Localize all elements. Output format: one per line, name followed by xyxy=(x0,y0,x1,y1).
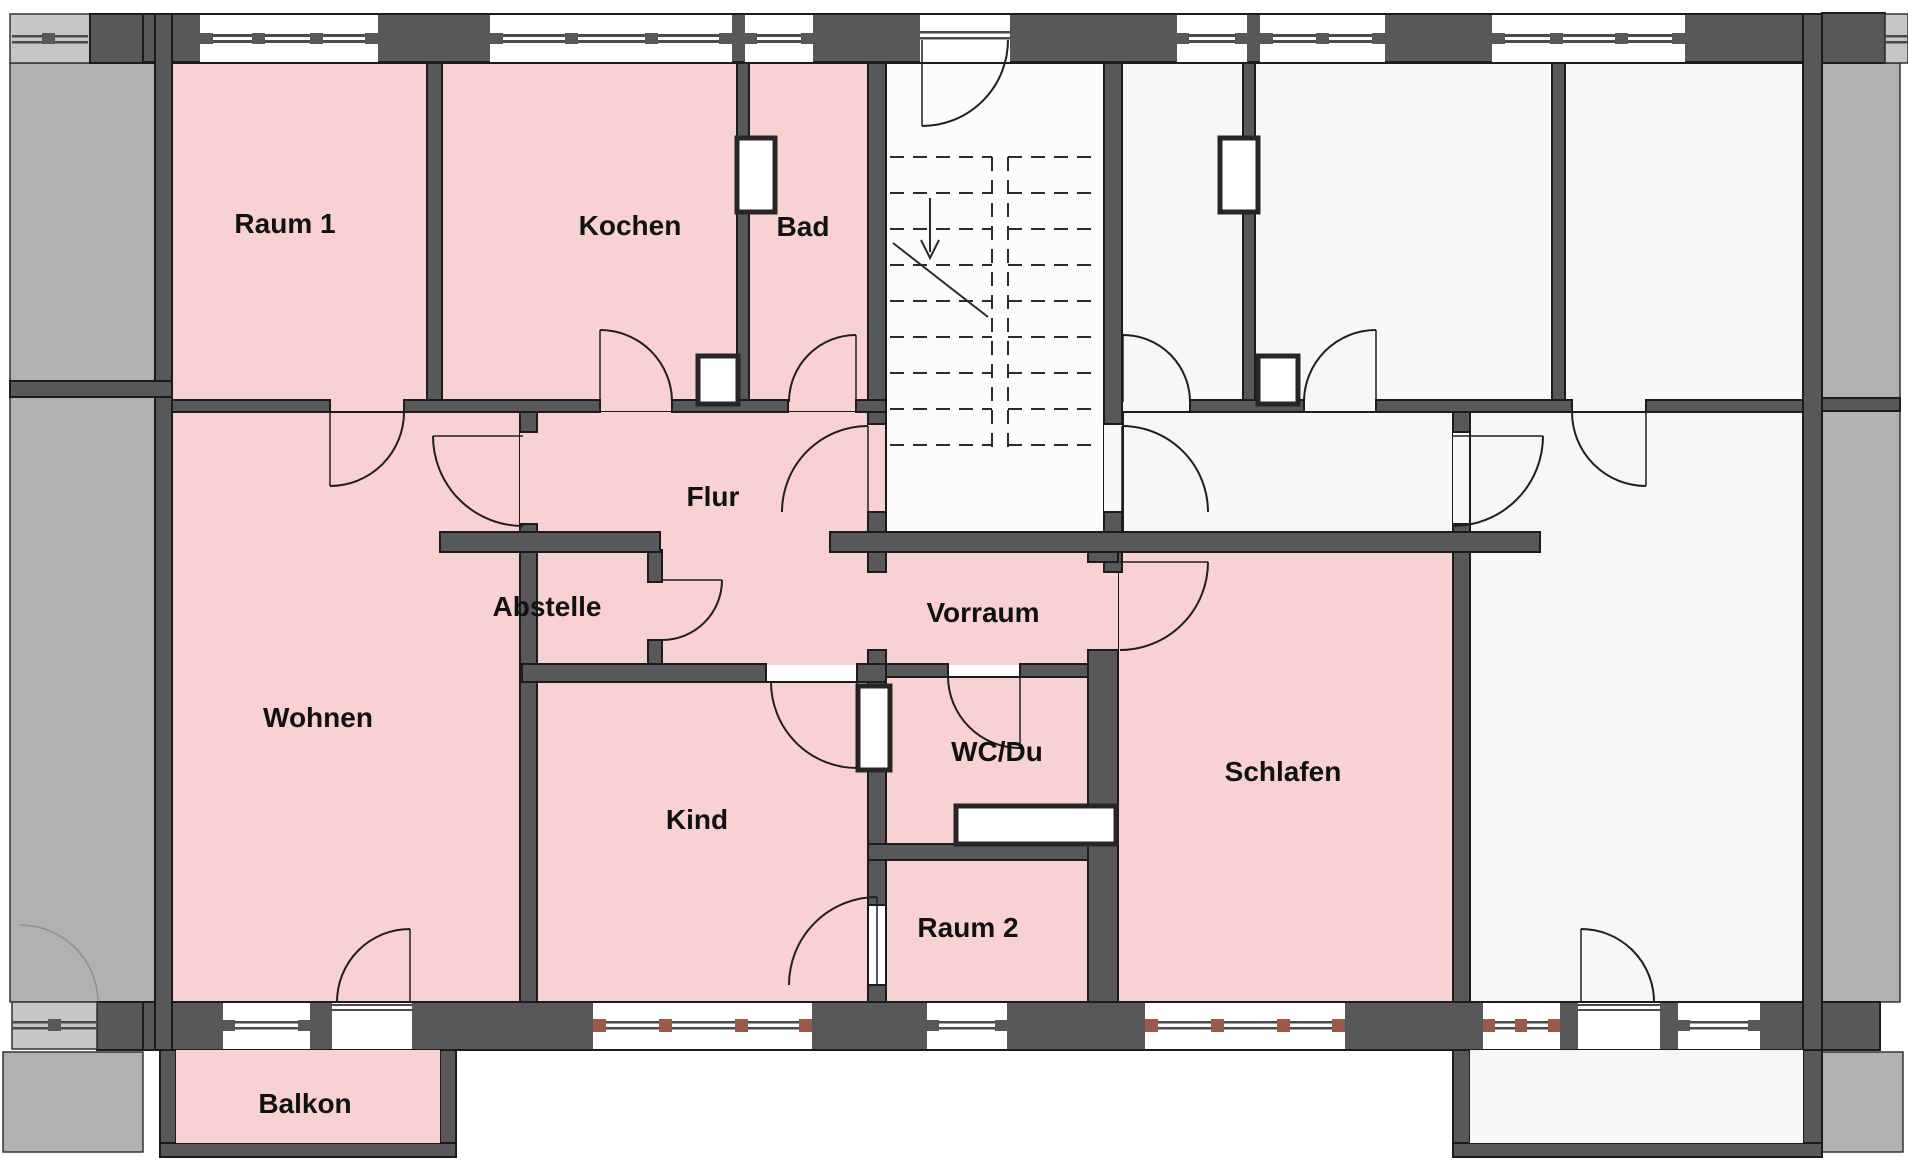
wall-segment xyxy=(1376,400,1572,412)
wall-segment xyxy=(522,664,766,682)
wall-segment xyxy=(648,550,662,582)
wall-stairwell-east xyxy=(1104,63,1122,424)
window-bad xyxy=(745,15,813,62)
room-label-wohnen: Wohnen xyxy=(263,702,373,733)
wall-segment xyxy=(427,63,442,412)
balcony-wall xyxy=(440,1050,456,1157)
balcony-wall xyxy=(1803,1050,1822,1157)
balcony-wall xyxy=(160,1050,176,1157)
wall-exterior-east xyxy=(1803,14,1822,1050)
room-label-raum1: Raum 1 xyxy=(234,208,335,239)
room-label-schlafen: Schlafen xyxy=(1225,756,1342,787)
floor-plan-drawing: Raum 1 Kochen Bad Flur Abstelle Vorraum … xyxy=(0,0,1908,1166)
room-label-balkon: Balkon xyxy=(258,1088,351,1119)
neighbor-balcony-left xyxy=(3,1052,143,1152)
wall-segment xyxy=(1243,63,1255,412)
wall-segment xyxy=(886,664,948,677)
shaft-right-bad xyxy=(1220,138,1258,212)
wall-exterior-west xyxy=(155,14,172,1050)
wall-segment xyxy=(440,532,660,552)
room-label-kind: Kind xyxy=(666,804,728,835)
window-right-wohnen-b xyxy=(1678,1003,1760,1049)
wall-segment xyxy=(830,532,1540,552)
wall-segment xyxy=(1088,552,1118,562)
wall-segment xyxy=(1020,664,1088,677)
doorway-right-wohnen xyxy=(1453,430,1470,526)
window-raum2 xyxy=(927,1003,1007,1049)
wall-segment xyxy=(1453,524,1470,1002)
window-kochen xyxy=(490,15,732,62)
window-kind xyxy=(593,1003,812,1049)
wall-segment xyxy=(856,400,886,412)
neighbor-building-right xyxy=(1822,13,1908,1152)
shaft-bad xyxy=(737,138,775,212)
room-kind xyxy=(537,682,868,1002)
floor-plan-page: Raum 1 Kochen Bad Flur Abstelle Vorraum … xyxy=(0,0,1908,1166)
room-label-wcdu: WC/Du xyxy=(951,736,1043,767)
entry-doorway-left xyxy=(868,424,886,512)
balcony-wall xyxy=(1453,1143,1822,1157)
window-schlafen xyxy=(1145,1003,1345,1049)
window-right-wohnen-a xyxy=(1483,1003,1560,1049)
window-right-bad xyxy=(1177,15,1247,62)
entry-doorway-right xyxy=(1104,424,1122,512)
room-flur xyxy=(537,412,868,532)
balcony-door-wohnen xyxy=(332,1003,412,1049)
wall-segment xyxy=(1646,400,1803,412)
shaft-right-kochen xyxy=(1258,356,1298,404)
window-wohnen xyxy=(223,1003,310,1049)
balcony-wall xyxy=(1453,1050,1470,1157)
wall-segment xyxy=(404,400,600,412)
window-neighbor-left-bottom xyxy=(12,1002,97,1049)
neighbor-building-left xyxy=(3,14,155,1152)
room-label-kochen: Kochen xyxy=(579,210,682,241)
neighbor-balcony-right xyxy=(1822,1052,1903,1152)
wall-segment xyxy=(1552,63,1565,412)
wall-segment xyxy=(857,664,886,682)
wall-segment xyxy=(172,400,330,412)
room-label-bad: Bad xyxy=(777,211,830,242)
room-right-raum1 xyxy=(1565,63,1803,412)
window-right-raum1 xyxy=(1492,15,1685,62)
shaft-wcdu-south xyxy=(956,806,1116,844)
doorway-schlafen xyxy=(1088,562,1118,650)
room-right-flur xyxy=(1123,412,1453,532)
stairwell xyxy=(886,63,1104,532)
balcony-door-right-wohnen xyxy=(1578,1003,1660,1049)
room-label-vorraum: Vorraum xyxy=(926,597,1039,628)
window-raum1 xyxy=(200,15,378,62)
room-label-raum2: Raum 2 xyxy=(917,912,1018,943)
wall-stairwell-west xyxy=(868,63,886,424)
shaft-wcdu-west xyxy=(858,686,890,770)
wall-segment xyxy=(868,985,886,1002)
room-right-balkon xyxy=(1470,1050,1803,1143)
room-right-wohnen xyxy=(1470,412,1803,1002)
balcony-wall xyxy=(160,1143,456,1157)
shaft-kochen xyxy=(698,356,738,404)
room-right-bad xyxy=(1122,63,1243,412)
room-label-abstelle: Abstelle xyxy=(493,591,602,622)
window-right-kochen xyxy=(1260,15,1385,62)
doorway-wohnen xyxy=(520,430,537,526)
windows-top xyxy=(12,15,1908,62)
stairwell-entrance-door xyxy=(920,15,1010,62)
room-label-flur: Flur xyxy=(687,481,740,512)
